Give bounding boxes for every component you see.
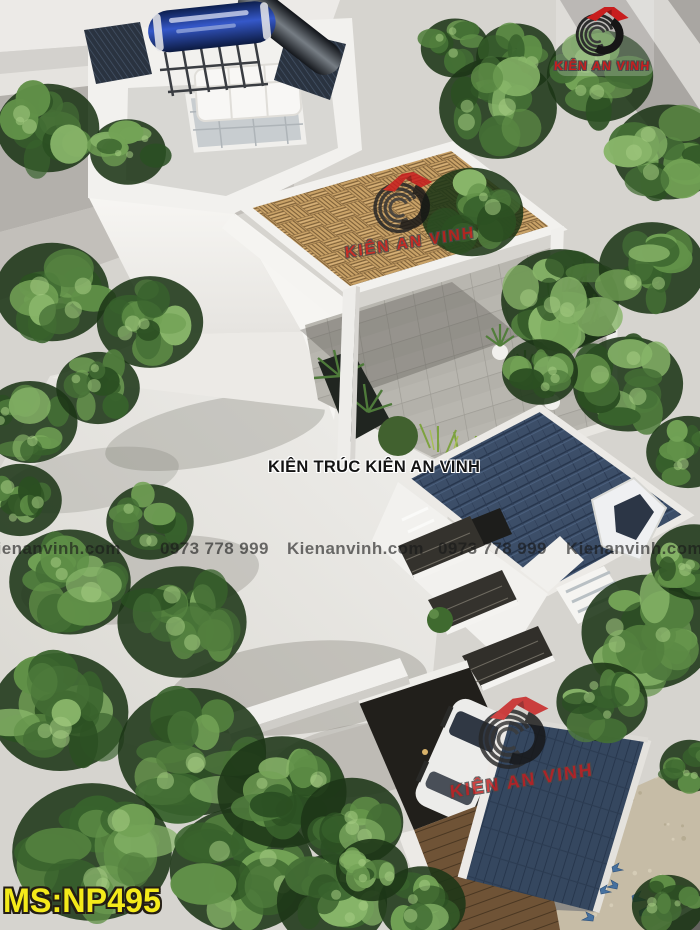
- watermark-website: Kienanvinh.com: [287, 539, 424, 559]
- kien-an-vinh-logo-icon: [573, 2, 631, 58]
- kien-an-vinh-logo-text: KIÊN AN VINH: [553, 59, 650, 73]
- watermark-website: Kienanvinh.com: [0, 539, 121, 559]
- kien-an-vinh-logo-icon: [467, 686, 562, 776]
- watermark-phone: 0973 778 999: [438, 539, 547, 559]
- architectural-render-scene: KIÊN AN VINH KIÊN AN VINH KIÊN AN VINH K…: [0, 0, 700, 930]
- watermark-website: Kienanvinh.com: [566, 539, 700, 559]
- model-code-label: MS:NP495: [3, 882, 161, 921]
- watermark-center-title: KIÊN TRÚC KIÊN AN VINH: [268, 458, 480, 477]
- kien-an-vinh-logo: KIÊN AN VINH: [544, 2, 660, 73]
- kien-an-vinh-logo-icon: [364, 163, 443, 239]
- watermark-phone: 0973 778 999: [160, 539, 269, 559]
- solar-panel-left: [84, 22, 152, 84]
